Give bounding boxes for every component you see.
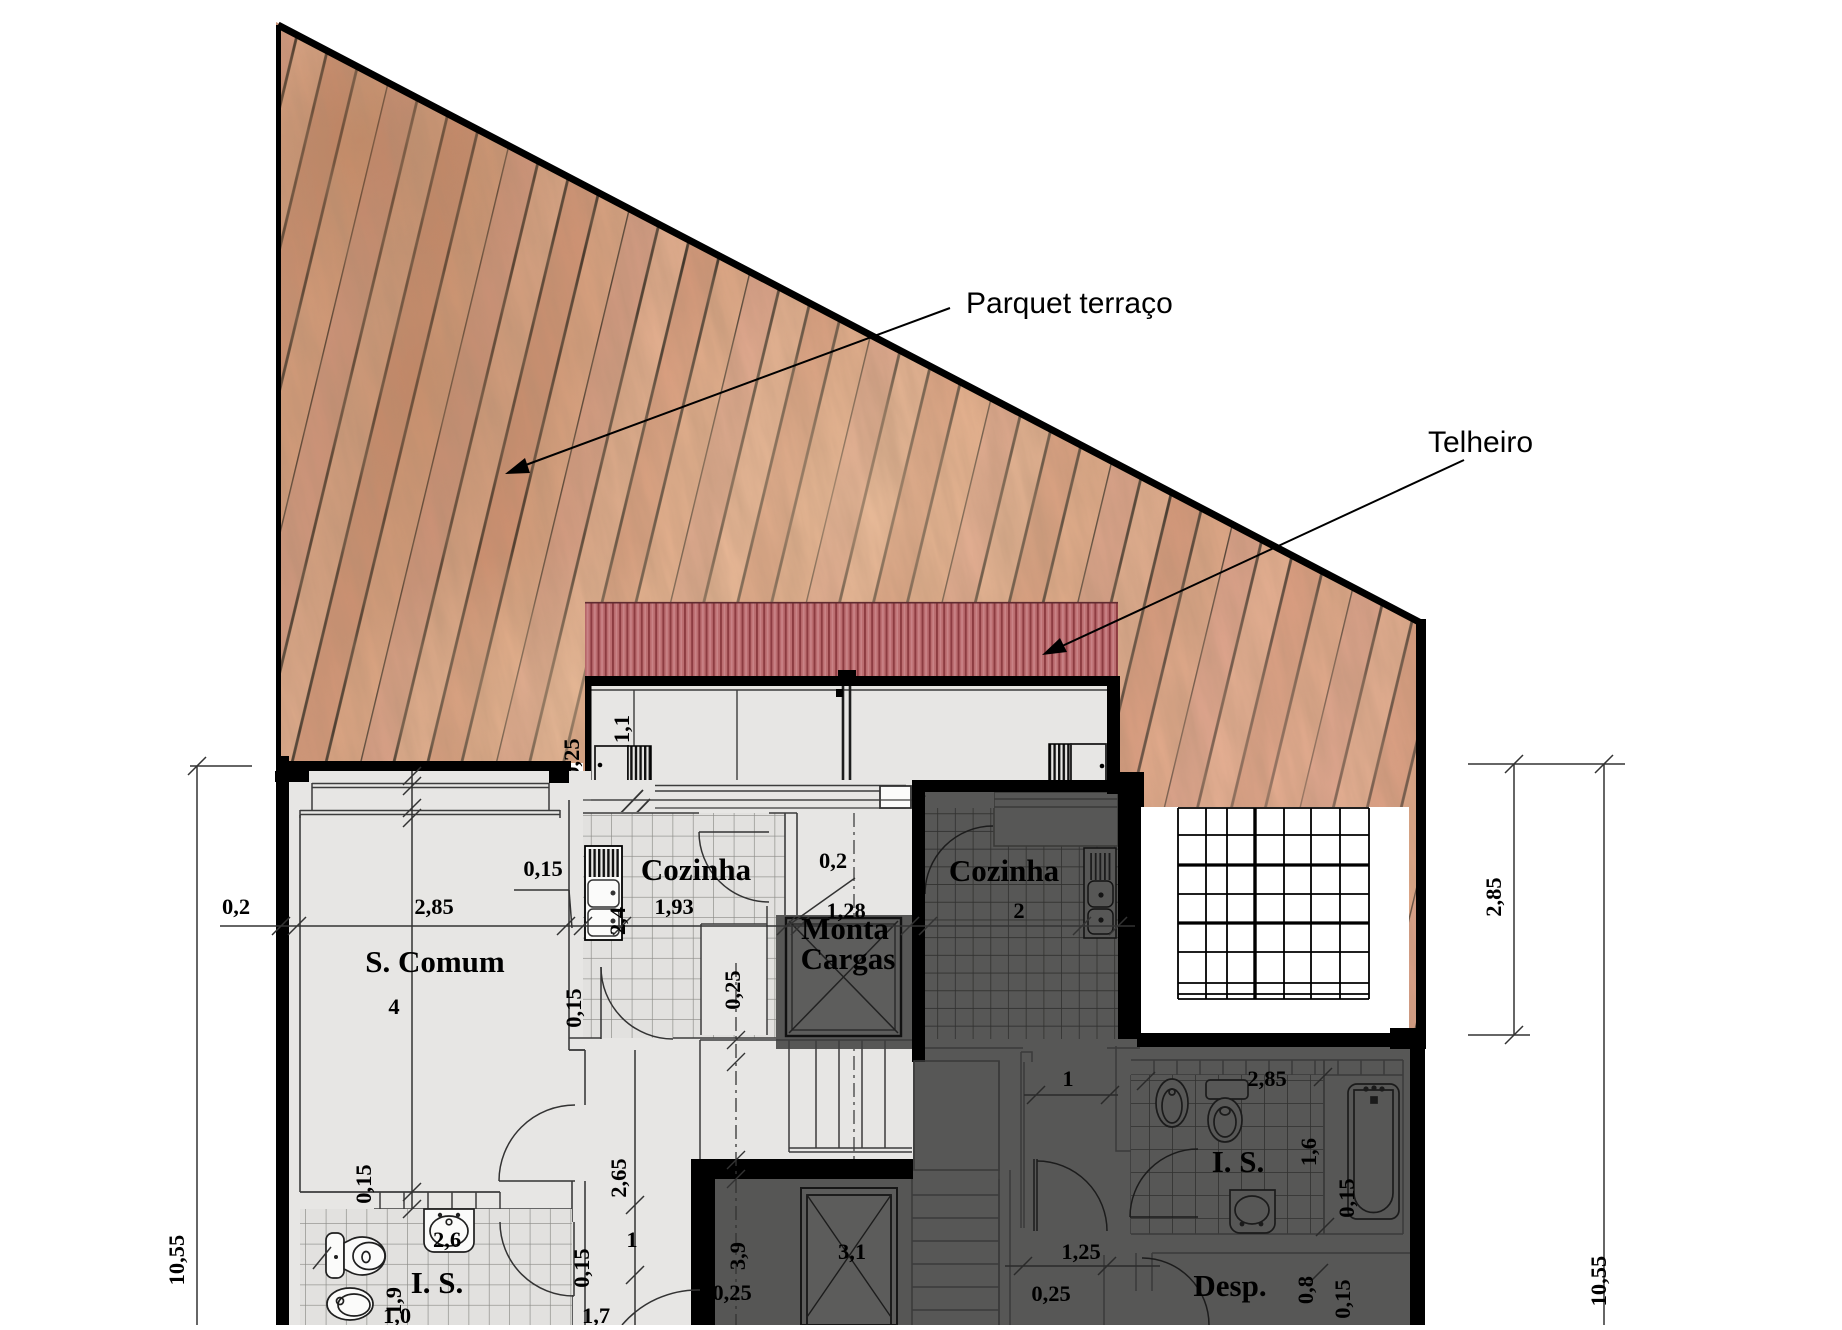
svg-text:Parquet terraço: Parquet terraço [966,287,1173,320]
svg-text:Cozinha: Cozinha [949,853,1060,888]
svg-text:2,4: 2,4 [605,907,630,935]
svg-text:0,8: 0,8 [1293,1276,1318,1304]
svg-text:1: 1 [1062,1066,1073,1091]
svg-text:0,2: 0,2 [222,894,250,919]
svg-text:0,2: 0,2 [819,848,847,873]
svg-text:Telheiro: Telheiro [1428,426,1533,459]
svg-text:0,15: 0,15 [351,1164,376,1203]
svg-text:2,6: 2,6 [433,1227,461,1252]
svg-text:S. Comum: S. Comum [365,944,505,979]
svg-text:0,15: 0,15 [1330,1279,1355,1318]
svg-text:1,7: 1,7 [582,1303,610,1325]
svg-text:2,65: 2,65 [606,1158,631,1197]
svg-text:Cozinha: Cozinha [641,852,752,887]
svg-text:1,6: 1,6 [1296,1138,1321,1166]
svg-text:0,25: 0,25 [1031,1281,1070,1306]
svg-text:4: 4 [388,994,399,1019]
svg-text:1,25: 1,25 [1061,1239,1100,1264]
svg-text:0,25: 0,25 [712,1280,751,1305]
svg-text:0,25: 0,25 [720,970,745,1009]
svg-text:2,85: 2,85 [1481,877,1506,916]
svg-text:3,1: 3,1 [838,1239,866,1264]
svg-text:1: 1 [626,1227,637,1252]
svg-text:I. S.: I. S. [1212,1144,1265,1179]
svg-text:10,55: 10,55 [164,1235,189,1286]
svg-text:2,85: 2,85 [1247,1066,1286,1091]
svg-text:0,15: 0,15 [561,988,586,1027]
svg-text:10,55: 10,55 [1586,1256,1611,1307]
svg-text:2: 2 [1013,898,1024,923]
svg-text:2,85: 2,85 [414,894,453,919]
svg-text:I. S.: I. S. [411,1265,464,1300]
svg-text:1,1: 1,1 [609,715,634,743]
svg-text:Desp.: Desp. [1193,1268,1266,1303]
svg-text:1,0: 1,0 [383,1303,411,1325]
svg-text:1,93: 1,93 [654,894,693,919]
svg-text:Cargas: Cargas [801,941,896,976]
svg-text:3,9: 3,9 [725,1242,750,1270]
svg-text:0,15: 0,15 [523,856,562,881]
svg-text:0,15: 0,15 [569,1248,594,1287]
svg-text:0,15: 0,15 [1334,1178,1359,1217]
